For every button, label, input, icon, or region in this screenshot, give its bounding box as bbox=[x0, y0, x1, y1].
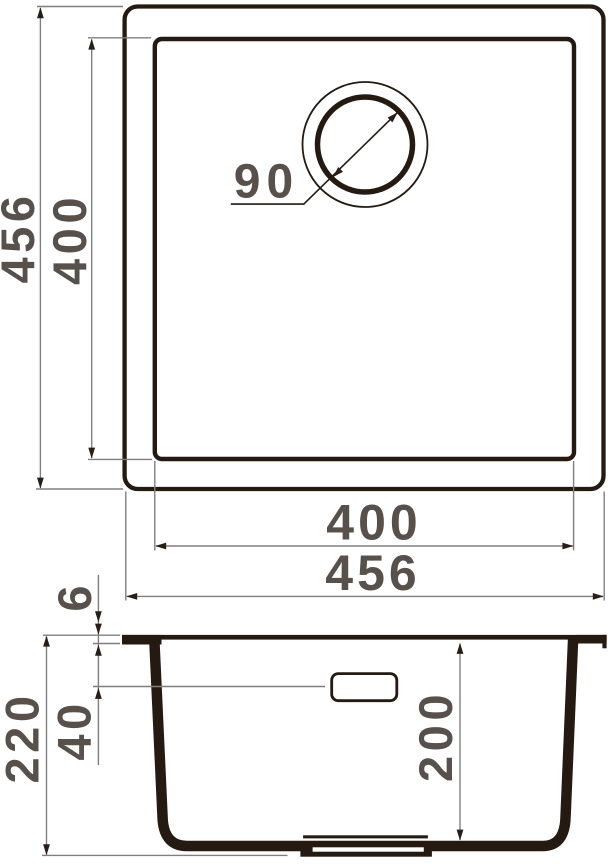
svg-text:456: 456 bbox=[325, 545, 420, 601]
svg-text:400: 400 bbox=[326, 495, 421, 551]
svg-text:200: 200 bbox=[409, 690, 462, 782]
svg-text:90: 90 bbox=[234, 156, 299, 209]
svg-text:400: 400 bbox=[43, 193, 96, 285]
svg-text:6: 6 bbox=[48, 582, 101, 611]
svg-text:40: 40 bbox=[48, 699, 101, 760]
svg-text:220: 220 bbox=[0, 692, 49, 784]
svg-text:456: 456 bbox=[0, 192, 44, 284]
